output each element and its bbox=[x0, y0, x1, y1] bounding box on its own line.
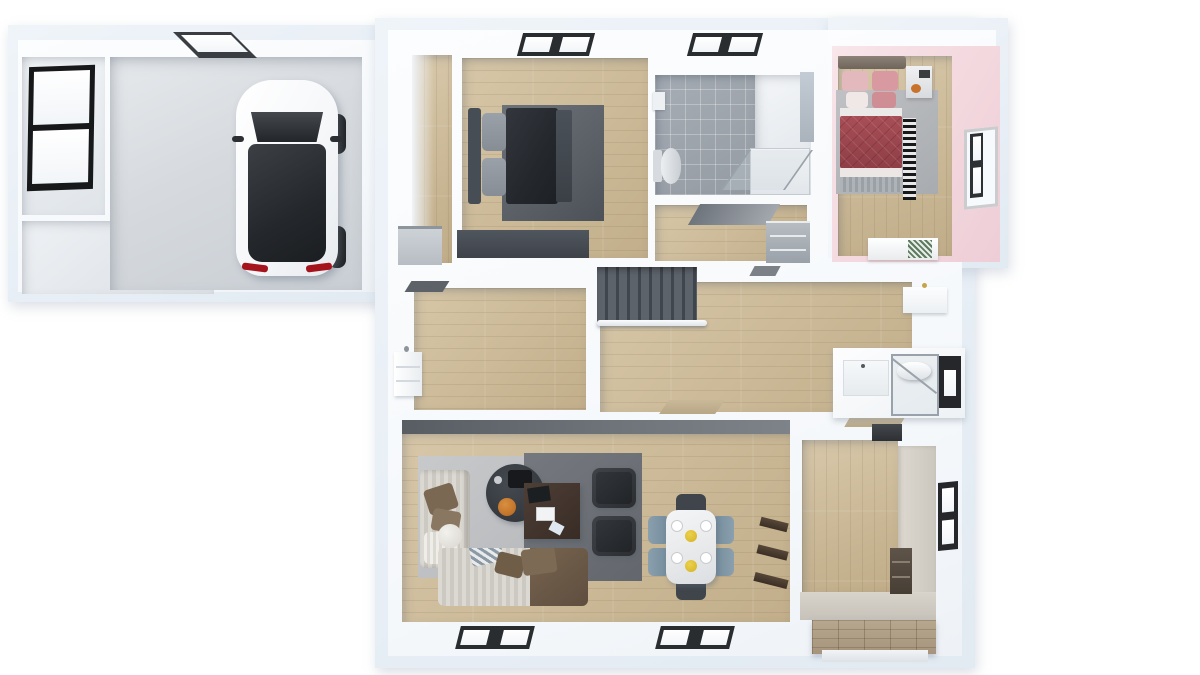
exterior-deck-step bbox=[822, 650, 928, 662]
toilet-bowl bbox=[661, 148, 681, 184]
gray-bedroom-dresser bbox=[457, 230, 589, 258]
car bbox=[232, 80, 346, 278]
armchair-black-2 bbox=[592, 516, 636, 556]
kitchen-appliance-dark bbox=[872, 424, 902, 441]
gray-bed bbox=[468, 108, 572, 204]
gray-bed-duvet bbox=[506, 108, 558, 204]
sofa-ottoman bbox=[438, 524, 462, 548]
staircase bbox=[597, 267, 697, 323]
plate-white-2 bbox=[700, 520, 712, 532]
pink-bed-pillow-1 bbox=[842, 71, 868, 91]
kitchen-floor bbox=[802, 440, 898, 592]
hallway-wall-cabinet bbox=[903, 287, 947, 313]
sofa-bottom bbox=[438, 548, 588, 606]
bathroom-window bbox=[687, 33, 763, 56]
toilet-paper-holder bbox=[653, 92, 665, 110]
plate-yellow-1 bbox=[685, 530, 697, 542]
car-mirror-right bbox=[330, 136, 342, 142]
gray-bed-pillow-2 bbox=[482, 158, 506, 196]
pink-bed-pillow-4 bbox=[872, 92, 896, 108]
sitting-room-floor bbox=[414, 288, 586, 410]
sitting-room-threshold bbox=[405, 281, 450, 292]
plate-white-4 bbox=[700, 552, 712, 564]
car-windshield bbox=[246, 112, 328, 142]
gray-bed-headboard bbox=[468, 108, 481, 204]
desk-paper bbox=[536, 507, 555, 521]
hallway-threshold-dark bbox=[749, 266, 780, 276]
floorplan-render bbox=[0, 0, 1200, 675]
pink-bedroom-window bbox=[964, 126, 998, 210]
living-window-1 bbox=[455, 626, 535, 649]
pink-bed-headboard bbox=[838, 56, 906, 69]
kitchen-drawers-dark bbox=[890, 548, 912, 594]
pink-bed-foot bbox=[840, 177, 902, 192]
coffee-table-orange-bowl bbox=[498, 498, 516, 516]
wc-door-handle bbox=[861, 364, 865, 368]
kitchen-counter-bottom bbox=[800, 592, 936, 620]
pink-bed bbox=[840, 60, 902, 192]
wc-room bbox=[833, 348, 965, 418]
coffee-table-candle bbox=[494, 476, 502, 484]
plate-yellow-2 bbox=[685, 560, 697, 572]
bench-green-cushion bbox=[908, 240, 932, 258]
sitting-room-cabinet bbox=[394, 352, 422, 396]
car-mirror-left bbox=[232, 136, 244, 142]
pink-bed-quilt bbox=[840, 116, 902, 168]
dining-table bbox=[666, 510, 716, 584]
cabinet-handle bbox=[922, 283, 927, 288]
desk bbox=[524, 483, 580, 539]
living-top-wall-shadow bbox=[402, 420, 790, 434]
pink-bench bbox=[868, 238, 938, 260]
desk-laptop bbox=[527, 486, 551, 504]
gray-bedroom-window bbox=[517, 33, 595, 56]
exterior-deck bbox=[812, 620, 936, 654]
pink-nightstand bbox=[906, 66, 932, 98]
entry-closet-niche bbox=[398, 226, 442, 265]
stair-handrail bbox=[597, 320, 707, 326]
pink-bedroom-striped-runner bbox=[903, 118, 916, 200]
desk-note bbox=[548, 521, 564, 536]
gray-bed-pillow-1 bbox=[482, 113, 506, 151]
living-window-2 bbox=[655, 626, 735, 649]
nightstand-decor-book bbox=[919, 70, 930, 78]
pink-bed-pillow-3 bbox=[846, 92, 868, 108]
plate-white-3 bbox=[671, 552, 683, 564]
armchair-black-1 bbox=[592, 468, 636, 508]
hallway-doormat bbox=[659, 400, 725, 414]
sofa-pillow-brown-4 bbox=[520, 548, 557, 576]
bathroom-mirror bbox=[800, 72, 814, 142]
wc-door-recess bbox=[843, 360, 889, 396]
toilet bbox=[653, 146, 681, 186]
cabinet-faucet bbox=[404, 346, 409, 352]
kitchen-window bbox=[938, 481, 958, 551]
plate-white-1 bbox=[671, 520, 683, 532]
pink-bed-sheet-bottom bbox=[840, 168, 902, 177]
inner-hall-cabinet bbox=[766, 221, 810, 263]
storage-window bbox=[27, 65, 95, 191]
gray-bed-runner bbox=[556, 110, 572, 202]
nightstand-decor-orange bbox=[911, 84, 921, 93]
car-roof-glass bbox=[248, 144, 326, 262]
wc-window bbox=[939, 356, 961, 408]
pink-bed-pillow-2 bbox=[872, 71, 898, 91]
